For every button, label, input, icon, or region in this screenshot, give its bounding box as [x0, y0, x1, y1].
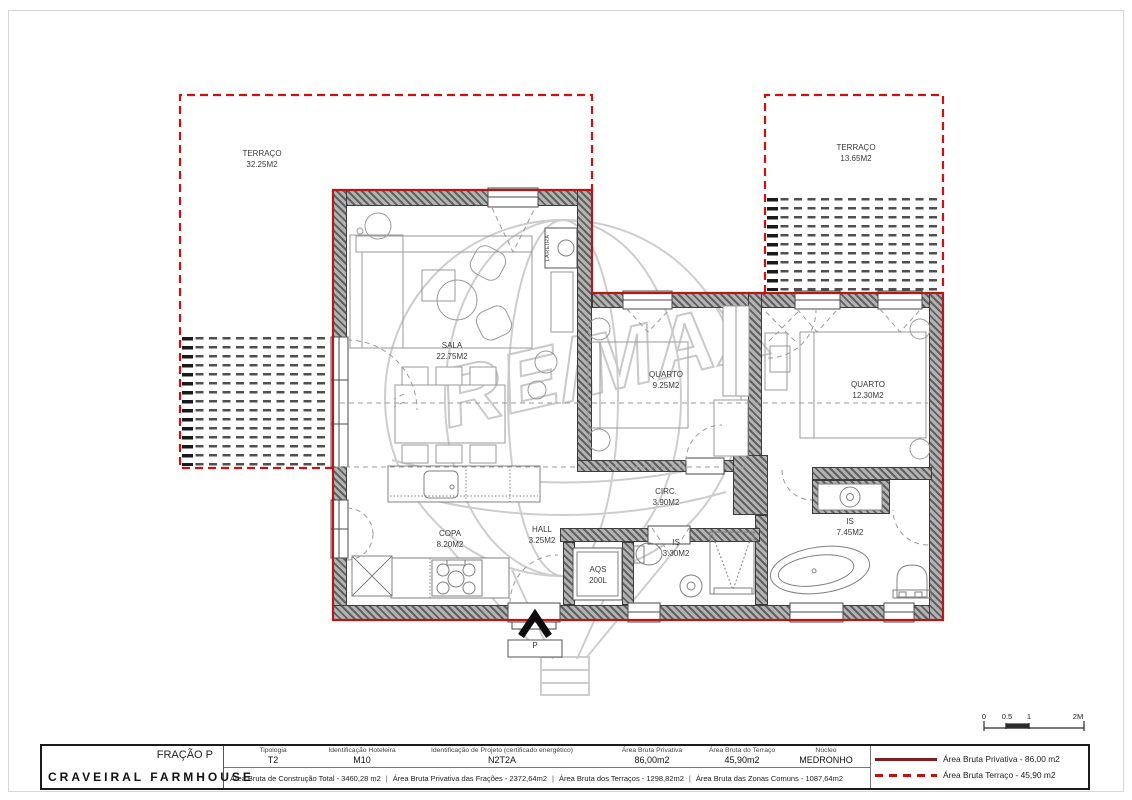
privative-area-outline	[333, 190, 943, 620]
room-label-is-2: IS7.45M2	[837, 517, 864, 539]
window-glazing-lines	[331, 197, 922, 612]
room-label-aqs: AQS200L	[589, 565, 607, 587]
area-total-1: Área Bruta Privativa das Frações - 2372,…	[393, 774, 547, 783]
legend-terrace-row: Área Bruta Terraço - 45,90 m2	[875, 770, 1084, 780]
room-label-terraco-left: TERRAÇO32.25M2	[242, 149, 281, 171]
area-total-3: Área Bruta das Zonas Comuns - 1087,64m2	[696, 774, 843, 783]
legend-privative-label: Área Bruta Privativa - 86,00 m2	[943, 754, 1060, 764]
title-block-left: FRAÇÃO P CRAVEIRAL FARMHOUSE	[42, 746, 224, 788]
project-name: CRAVEIRAL FARMHOUSE	[48, 770, 217, 784]
entrance-p-label: P	[508, 641, 562, 650]
title-field-1: Identificação HoteleiraM10	[322, 746, 402, 767]
room-label-is-1: IS3.30M2	[663, 538, 690, 560]
room-label-circ: CIRC.3.90M2	[653, 487, 680, 509]
legend-privative-row: Área Bruta Privativa - 86,00 m2	[875, 754, 1084, 764]
title-field-0: TipologiaT2	[224, 746, 322, 767]
plan-linework	[0, 0, 1132, 800]
room-label-terraco-right: TERRAÇO13.65M2	[836, 143, 875, 165]
legend-dashed-line-icon	[875, 774, 937, 777]
fireplace-label: LAREIRA	[545, 226, 557, 270]
area-total-0: Área Bruta de Construção Total - 3460,28…	[230, 774, 381, 783]
room-label-quarto-2: QUARTO12.30M2	[851, 380, 885, 402]
legend: Área Bruta Privativa - 86,00 m2 Área Bru…	[870, 746, 1088, 788]
title-field-4: Área Bruta do Terraço45,90m2	[702, 746, 782, 767]
scale-tick-0.5: 0.5	[1002, 712, 1012, 721]
furniture	[350, 213, 930, 463]
title-field-5: NúcleoMEDRONHO	[782, 746, 870, 767]
title-block: FRAÇÃO P CRAVEIRAL FARMHOUSE TipologiaT2…	[40, 744, 1090, 790]
title-field-2: Identificação de Projeto (certificado en…	[402, 746, 602, 767]
area-totals-row: Área Bruta de Construção Total - 3460,28…	[224, 768, 870, 788]
scale-tick-1: 1	[1027, 712, 1031, 721]
room-label-hall: HALL3.25M2	[529, 525, 556, 547]
fraction-label: FRAÇÃO P	[48, 749, 217, 761]
scale-bar	[984, 721, 1084, 731]
area-total-2: Área Bruta dos Terraços - 1298,82m2	[559, 774, 684, 783]
legend-terrace-label: Área Bruta Terraço - 45,90 m2	[943, 770, 1056, 780]
room-label-sala: SALA22.75M2	[436, 341, 467, 363]
scale-tick-2M: 2M	[1073, 712, 1083, 721]
scale-tick-0: 0	[982, 712, 986, 721]
legend-solid-line-icon	[875, 758, 937, 761]
title-field-3: Área Bruta Privativa86,00m2	[602, 746, 702, 767]
room-label-quarto-1: QUARTO9.25M2	[649, 370, 683, 392]
dashed-lines	[336, 208, 928, 603]
room-label-copa: COPA8.20M2	[437, 529, 464, 551]
title-block-fields: TipologiaT2Identificação HoteleiraM10Ide…	[224, 746, 870, 788]
